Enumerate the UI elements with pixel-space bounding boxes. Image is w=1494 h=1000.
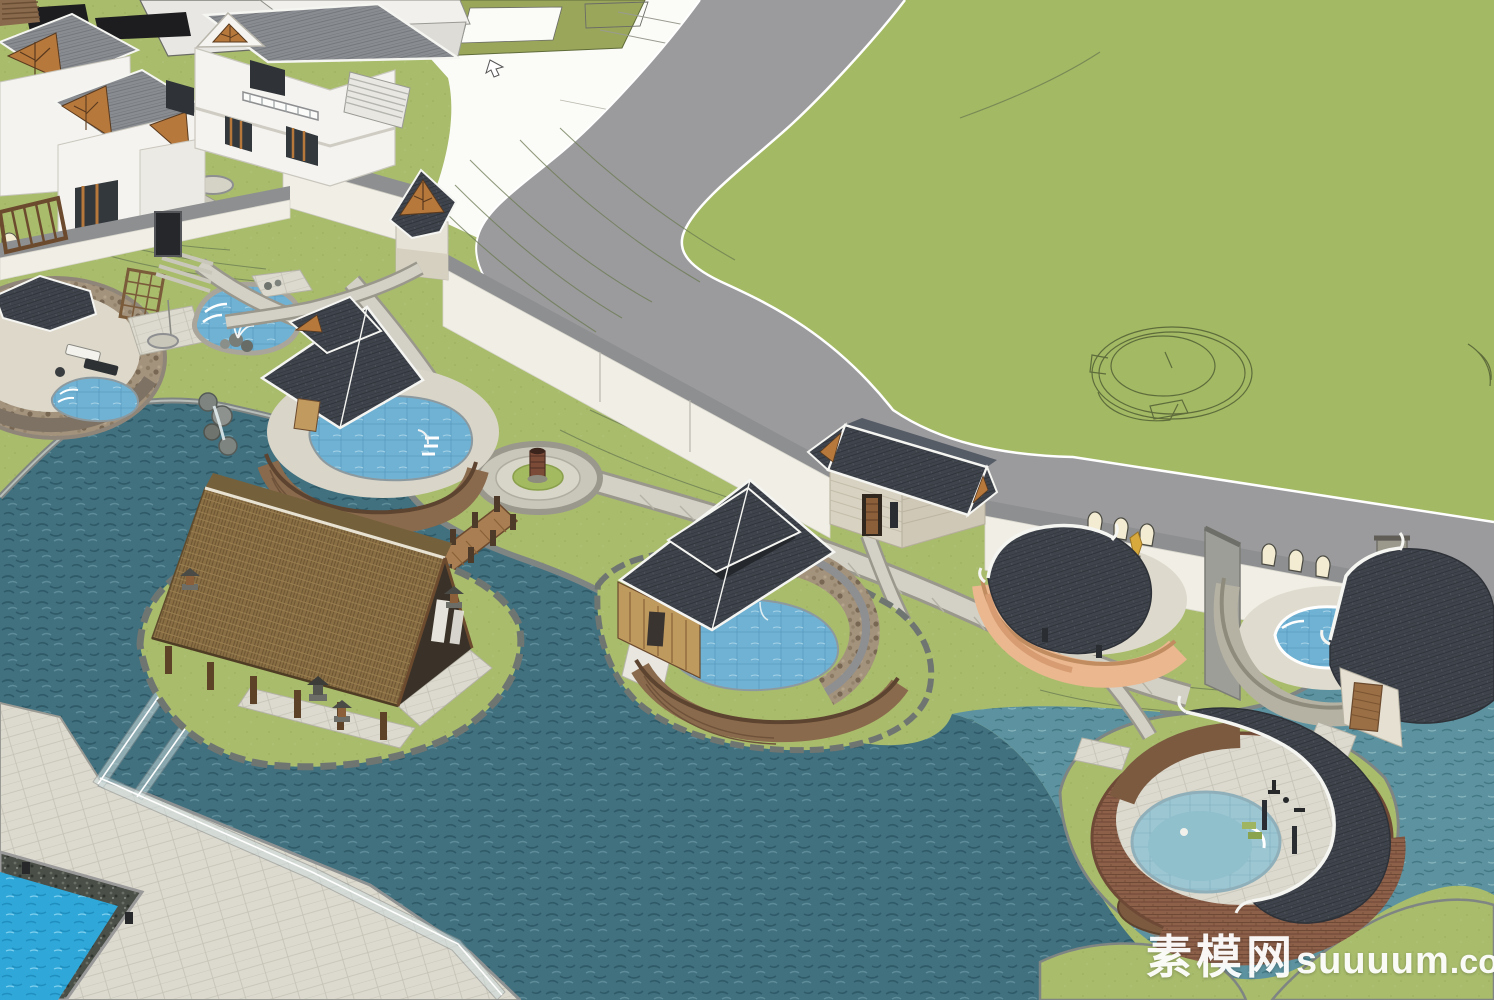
watermark: 素模网suuuum.com [1146, 921, 1494, 987]
watermark-tld: .com [1450, 943, 1494, 982]
plaza-sculpture [528, 448, 548, 483]
bollard-light [125, 912, 133, 924]
watermark-site-name-cn: 素模网 [1146, 921, 1296, 987]
render-canvas [0, 0, 1494, 1000]
courtyard-gate [155, 212, 181, 256]
bollard-light [22, 862, 30, 874]
watermark-site-name-latin: suuuum [1296, 940, 1450, 983]
round-pad [148, 334, 178, 348]
pavilion-one-wall [294, 399, 320, 432]
resort-aerial-render: 素模网suuuum.com [0, 0, 1494, 1000]
